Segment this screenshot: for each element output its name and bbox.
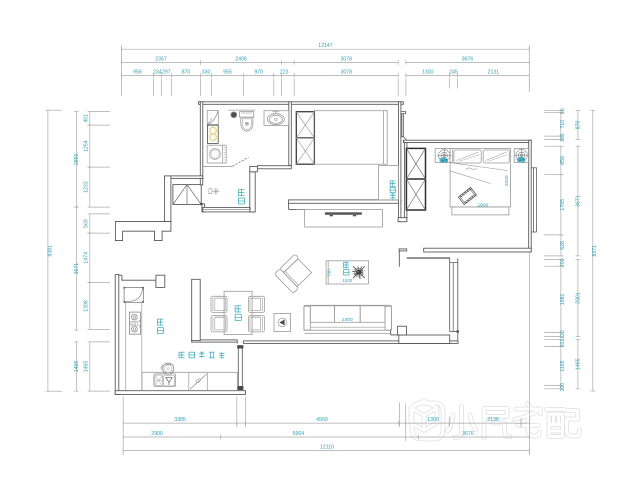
svg-text:1254: 1254 [84,140,90,152]
svg-text:5904: 5904 [293,431,305,437]
svg-text:1465: 1465 [84,361,90,373]
svg-text:3676: 3676 [462,56,474,62]
svg-text:120: 120 [560,330,566,339]
svg-text:3078: 3078 [341,69,353,75]
svg-text:2357: 2357 [155,56,167,62]
svg-text:3671: 3671 [576,195,582,207]
svg-text:569: 569 [84,219,90,228]
svg-text:1465: 1465 [576,358,582,370]
svg-text:2131: 2131 [488,69,500,75]
svg-text:1398: 1398 [84,300,90,312]
svg-text:2136: 2136 [487,417,499,423]
svg-text:2400: 2400 [342,317,353,323]
svg-text:100: 100 [560,133,566,142]
svg-text:330: 330 [202,69,211,75]
svg-text:628: 628 [560,241,566,250]
svg-text:1165: 1165 [560,360,566,371]
svg-text:850: 850 [560,156,566,165]
svg-text:955: 955 [223,69,232,75]
svg-text:1800: 1800 [477,202,488,208]
svg-text:223: 223 [280,69,289,75]
svg-text:2408: 2408 [235,56,247,62]
svg-text:1233: 1233 [84,181,90,193]
svg-text:1300: 1300 [422,69,434,75]
svg-text:1795: 1795 [560,199,566,211]
svg-text:245: 245 [449,69,458,75]
svg-text:956: 956 [133,69,142,75]
svg-text:12110: 12110 [320,445,334,451]
svg-text:401: 401 [84,114,90,123]
svg-text:1300: 1300 [427,417,439,423]
svg-text:2000: 2000 [504,175,510,186]
svg-text:1981: 1981 [560,294,566,306]
svg-text:100: 100 [560,383,566,392]
svg-text:710: 710 [560,120,566,129]
svg-text:297: 297 [162,69,171,75]
svg-text:2900: 2900 [151,431,163,437]
svg-text:970: 970 [254,69,263,75]
svg-text:3385: 3385 [174,417,186,423]
svg-text:8381: 8381 [48,245,54,257]
svg-text:12147: 12147 [318,43,333,49]
svg-text:2850: 2850 [74,153,80,165]
svg-text:700: 700 [327,269,332,277]
svg-text:1474: 1474 [84,252,90,264]
svg-text:4569: 4569 [316,417,328,423]
svg-text:8371: 8371 [592,245,598,257]
svg-text:3671: 3671 [74,263,80,275]
svg-text:3078: 3078 [341,56,353,62]
svg-text:2301: 2301 [576,292,582,304]
svg-text:3676: 3676 [462,431,474,437]
svg-text:870: 870 [182,69,191,75]
svg-text:1465: 1465 [74,361,80,373]
svg-text:870: 870 [576,120,582,129]
svg-text:234: 234 [153,69,162,75]
svg-text:1200: 1200 [342,278,353,283]
